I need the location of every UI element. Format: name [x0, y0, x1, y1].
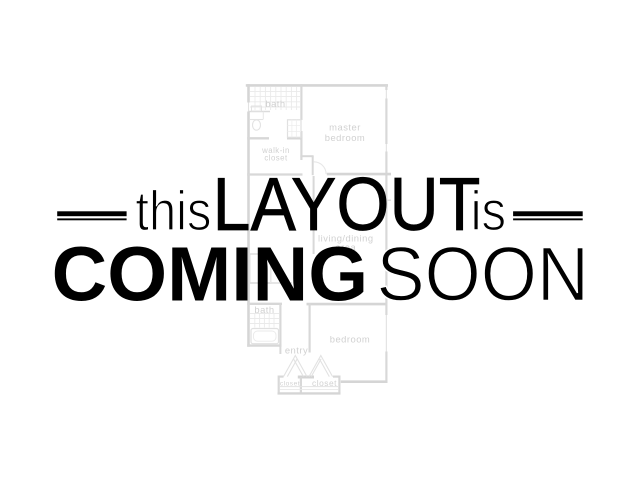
svg-text:COMING: COMING [52, 231, 369, 317]
svg-text:SOON: SOON [377, 231, 590, 317]
svg-text:bedroom: bedroom [325, 132, 366, 143]
svg-text:master: master [329, 122, 361, 133]
svg-text:entry: entry [285, 345, 308, 356]
svg-text:closet: closet [312, 378, 337, 388]
svg-text:bath: bath [265, 98, 285, 109]
svg-text:bedroom: bedroom [330, 334, 371, 345]
svg-text:closet: closet [280, 381, 300, 388]
